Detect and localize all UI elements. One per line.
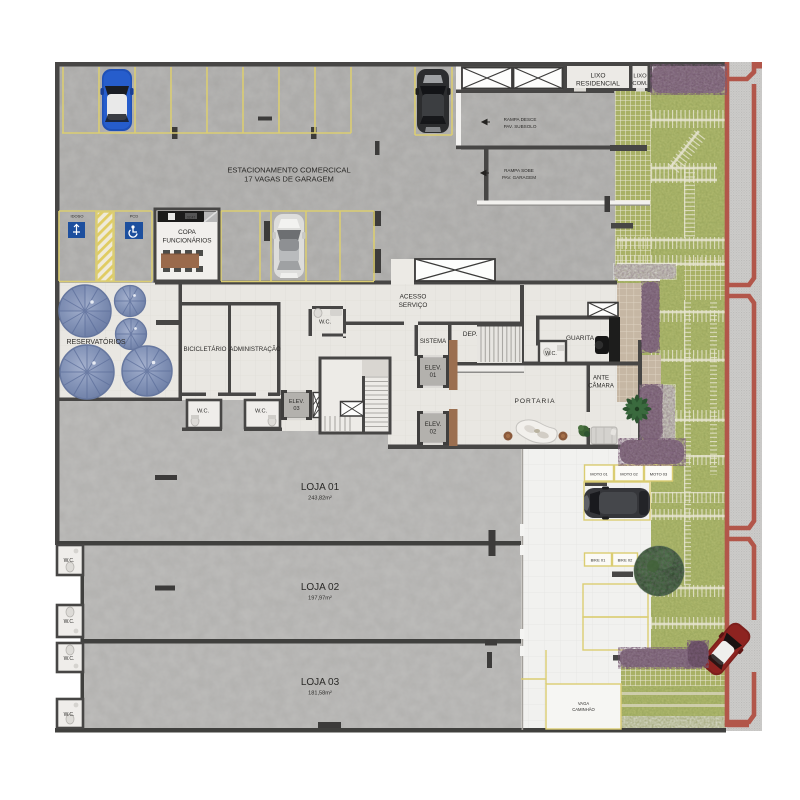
svg-text:RESERVATÓRIOS: RESERVATÓRIOS [66, 337, 125, 346]
svg-text:02:47: 02:47 [187, 216, 196, 220]
svg-text:MOTO 01: MOTO 01 [590, 472, 608, 477]
svg-text:W.C.: W.C. [64, 712, 75, 718]
svg-text:243,82m²: 243,82m² [308, 496, 332, 502]
svg-text:ANTE: ANTE [593, 376, 609, 382]
svg-text:ESTACIONAMENTO COMERCICAL: ESTACIONAMENTO COMERCICAL [227, 166, 350, 175]
svg-text:RAMPA DESCE: RAMPA DESCE [504, 117, 537, 122]
svg-text:17 VAGAS DE GARAGEM: 17 VAGAS DE GARAGEM [244, 175, 334, 184]
svg-text:MOTO 02: MOTO 02 [620, 472, 638, 477]
svg-text:PORTARIA: PORTARIA [514, 398, 555, 405]
svg-text:ACESSO: ACESSO [400, 294, 427, 301]
svg-text:IDOSO: IDOSO [71, 214, 84, 219]
svg-text:ELEV.: ELEV. [425, 366, 442, 372]
svg-text:ELEV.: ELEV. [289, 399, 305, 405]
svg-text:02: 02 [430, 430, 437, 436]
svg-text:LOJA 03: LOJA 03 [301, 677, 340, 688]
svg-text:COM.: COM. [632, 81, 648, 87]
svg-text:RESIDENCIAL: RESIDENCIAL [576, 81, 620, 88]
svg-text:W.C.: W.C. [64, 656, 75, 662]
svg-text:01: 01 [430, 373, 437, 379]
svg-text:181,58m²: 181,58m² [308, 691, 332, 697]
svg-text:BIKE 02: BIKE 02 [618, 558, 633, 563]
svg-text:BICICLETÁRIO: BICICLETÁRIO [184, 346, 227, 353]
svg-text:ADMINISTRAÇÃO: ADMINISTRAÇÃO [229, 346, 281, 353]
svg-text:MOTO 03: MOTO 03 [650, 472, 668, 477]
svg-text:ELEV.: ELEV. [425, 422, 442, 428]
svg-text:SERVIÇO: SERVIÇO [399, 302, 428, 309]
svg-text:W.C.: W.C. [64, 619, 75, 625]
svg-text:PCD: PCD [130, 214, 139, 219]
svg-text:FUNCIONÁRIOS: FUNCIONÁRIOS [163, 236, 212, 245]
svg-text:W.C.: W.C. [197, 409, 210, 415]
svg-text:CÂMARA: CÂMARA [588, 383, 614, 390]
svg-text:PAV. GARAGEM: PAV. GARAGEM [502, 175, 536, 180]
svg-text:GUARITA: GUARITA [566, 335, 595, 342]
svg-text:DEP.: DEP. [463, 331, 478, 338]
svg-text:SISTEMA: SISTEMA [420, 339, 446, 345]
svg-text:BIKE 01: BIKE 01 [591, 558, 606, 563]
svg-text:W.C.: W.C. [64, 558, 75, 564]
svg-text:W.C.: W.C. [545, 351, 557, 357]
svg-text:LOJA 02: LOJA 02 [301, 582, 340, 593]
svg-text:197,97m²: 197,97m² [308, 596, 332, 602]
svg-text:LIXO: LIXO [633, 74, 647, 80]
svg-text:LOJA 01: LOJA 01 [301, 482, 340, 493]
svg-text:VAGA: VAGA [578, 701, 590, 706]
svg-text:RAMPA SOBE: RAMPA SOBE [504, 168, 534, 173]
svg-text:W.C.: W.C. [319, 320, 332, 326]
svg-text:COPA: COPA [178, 229, 196, 236]
svg-text:W.C.: W.C. [255, 409, 268, 415]
svg-text:03: 03 [293, 406, 299, 412]
svg-text:LIXO: LIXO [590, 73, 605, 80]
svg-text:CAMINHÃO: CAMINHÃO [572, 707, 595, 712]
svg-text:PAV. SUBSOLO: PAV. SUBSOLO [504, 124, 537, 129]
